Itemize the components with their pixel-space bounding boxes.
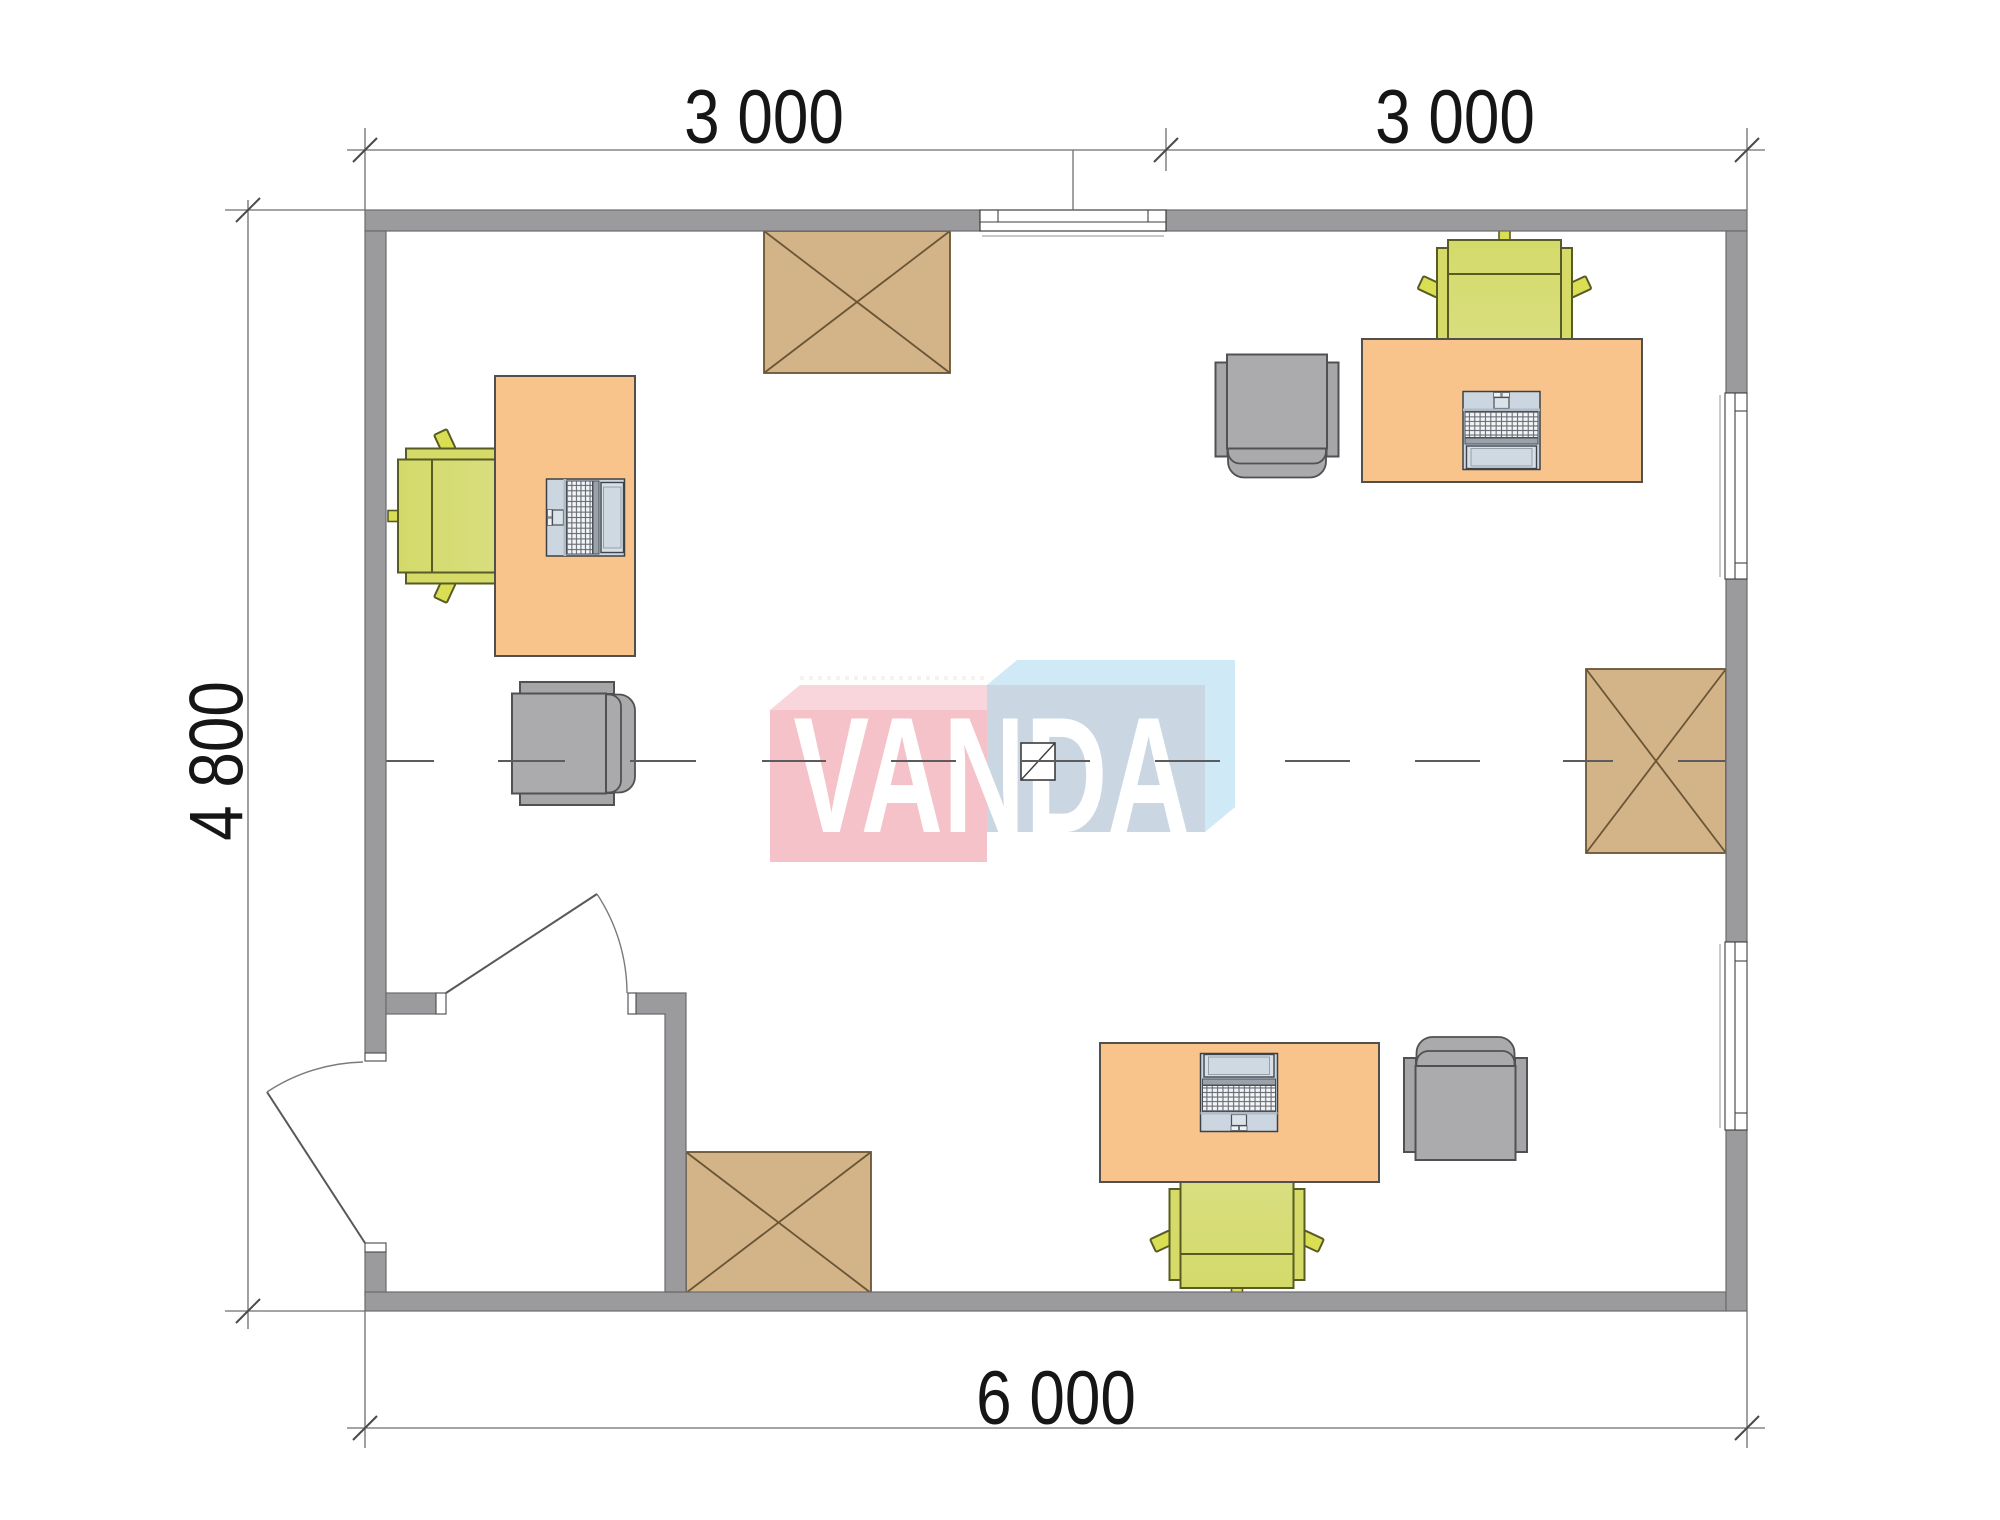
svg-text:6 000: 6 000 (976, 1355, 1136, 1441)
svg-text:VANDA: VANDA (793, 684, 1189, 868)
svg-text:4 800: 4 800 (173, 681, 259, 841)
svg-text:3 000: 3 000 (684, 74, 844, 160)
svg-text:3 000: 3 000 (1375, 74, 1535, 160)
